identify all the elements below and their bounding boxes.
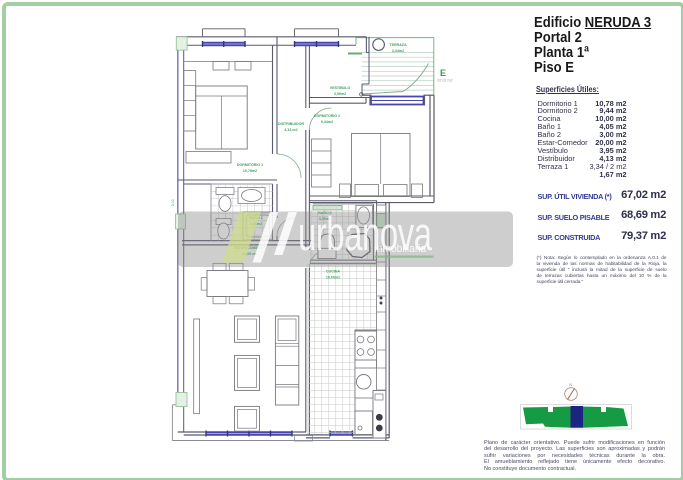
svg-text:9,44m2: 9,44m2: [321, 120, 333, 124]
svg-text:3,34m2: 3,34m2: [392, 49, 404, 53]
svg-text:TERRAZA: TERRAZA: [389, 43, 407, 47]
svg-text:3,95m2: 3,95m2: [334, 92, 346, 96]
svg-text:DISTRIBUIDOR: DISTRIBUIDOR: [278, 122, 304, 126]
svg-text:67,02 m2: 67,02 m2: [438, 79, 453, 83]
svg-text:N: N: [569, 382, 572, 387]
svg-text:inmobiliaria: inmobiliaria: [375, 243, 427, 255]
svg-text:E: E: [440, 68, 446, 78]
svg-text:DORMITORIO 2: DORMITORIO 2: [314, 114, 340, 118]
svg-text:DORMITORIO 1: DORMITORIO 1: [237, 163, 263, 167]
svg-text:10,00m2: 10,00m2: [326, 276, 340, 280]
svg-text:4,13 m2: 4,13 m2: [284, 128, 297, 132]
svg-text:10,78m2: 10,78m2: [243, 169, 257, 173]
svg-text:3,00: 3,00: [171, 199, 175, 206]
svg-text:VESTIBULO: VESTIBULO: [330, 86, 351, 90]
svg-text:COCINA: COCINA: [326, 270, 341, 274]
